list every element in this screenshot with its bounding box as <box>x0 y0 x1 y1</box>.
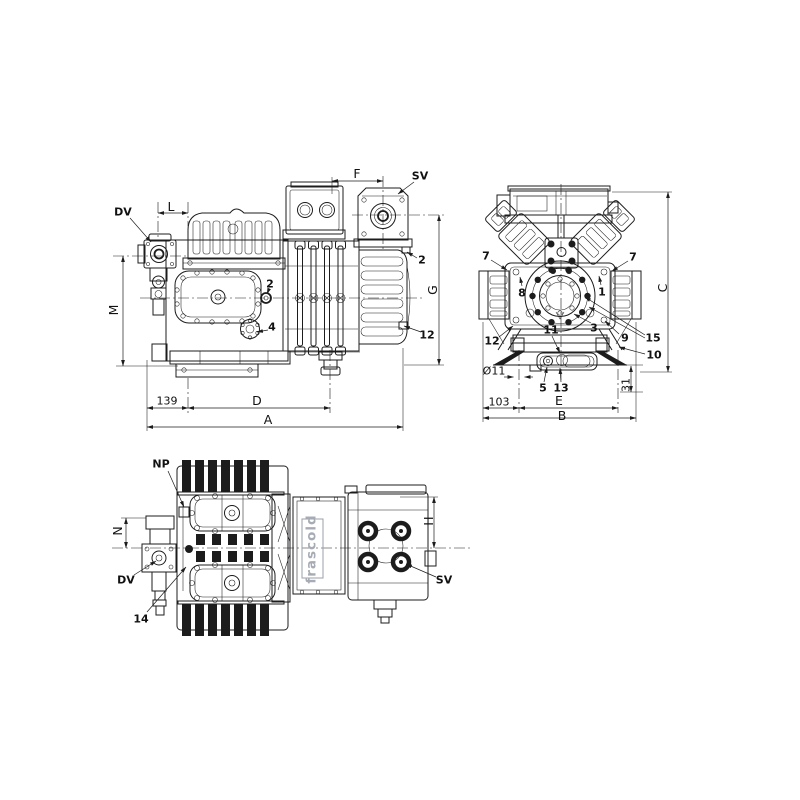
foot-right <box>596 352 627 365</box>
side-dim-139: 139 <box>157 396 178 407</box>
motor-end-bell-top <box>345 485 436 623</box>
side-label-4: 4 <box>268 322 276 333</box>
side-label-sv: SV <box>412 171 428 182</box>
side-dim-l: L <box>168 201 175 214</box>
side-view <box>113 176 444 431</box>
top-view <box>112 460 470 636</box>
discharge-valve-top <box>142 516 176 615</box>
inspection-cover-bolts <box>175 270 260 324</box>
discharge-valve-side <box>138 234 176 268</box>
oil-plug <box>185 545 193 553</box>
front-label-9: 9 <box>621 333 629 344</box>
front-label-1: 1 <box>598 287 606 298</box>
side-label-2-body: 2 <box>266 279 274 290</box>
front-dim-103: 103 <box>489 397 510 408</box>
front-dim-e: E <box>555 395 563 408</box>
cylinder-head-top-2 <box>178 551 284 636</box>
foot-left <box>493 352 524 365</box>
front-dim-dia11: Ø11 <box>483 366 506 377</box>
base-front <box>493 335 627 371</box>
cylinder-head-side <box>183 209 285 269</box>
compressor-dimensional-drawing: DV L F SV 2 M 2 4 G 12 139 D A 7 7 8 1 C… <box>0 0 800 800</box>
side-dim-d: D <box>252 395 262 408</box>
top-dim-h: H <box>423 516 436 525</box>
front-label-7-right: 7 <box>629 252 637 263</box>
side-label-2-valve: 2 <box>418 255 426 266</box>
front-label-7-left: 7 <box>482 251 490 262</box>
front-view <box>479 184 672 422</box>
side-dim-a: A <box>264 414 273 427</box>
front-label-3: 3 <box>590 323 598 334</box>
top-label-np: NP <box>152 459 169 470</box>
motor-end-bell-side <box>359 247 410 344</box>
frascold-logo: frascold <box>305 514 319 583</box>
side-left-fittings <box>150 268 167 315</box>
top-label-sv: SV <box>436 575 452 586</box>
top-label-dv: DV <box>117 575 135 586</box>
front-label-12: 12 <box>484 336 499 347</box>
front-dim-b: B <box>558 410 567 423</box>
front-label-8: 8 <box>518 288 526 299</box>
drawing-linework <box>0 0 800 800</box>
front-dim-c: C <box>657 284 670 293</box>
cylinder-bank-left <box>482 197 551 266</box>
cylinder-bank-right <box>569 197 638 266</box>
terminal-box-side <box>283 182 345 239</box>
side-dim-m: M <box>108 305 121 316</box>
side-dim-g: G <box>427 285 440 295</box>
front-label-11: 11 <box>543 325 558 336</box>
front-label-10: 10 <box>646 350 661 361</box>
front-label-15: 15 <box>645 333 660 344</box>
side-label-12: 12 <box>419 330 434 341</box>
oil-plug-NP <box>179 507 189 517</box>
side-dim-f: F <box>353 168 360 181</box>
cylinder-head-top-1 <box>178 460 284 545</box>
front-label-5: 5 <box>539 383 547 394</box>
front-dim-31: 31 <box>621 378 632 392</box>
top-label-14: 14 <box>133 614 148 625</box>
top-dim-n: N <box>112 526 125 535</box>
side-label-dv: DV <box>114 207 132 218</box>
